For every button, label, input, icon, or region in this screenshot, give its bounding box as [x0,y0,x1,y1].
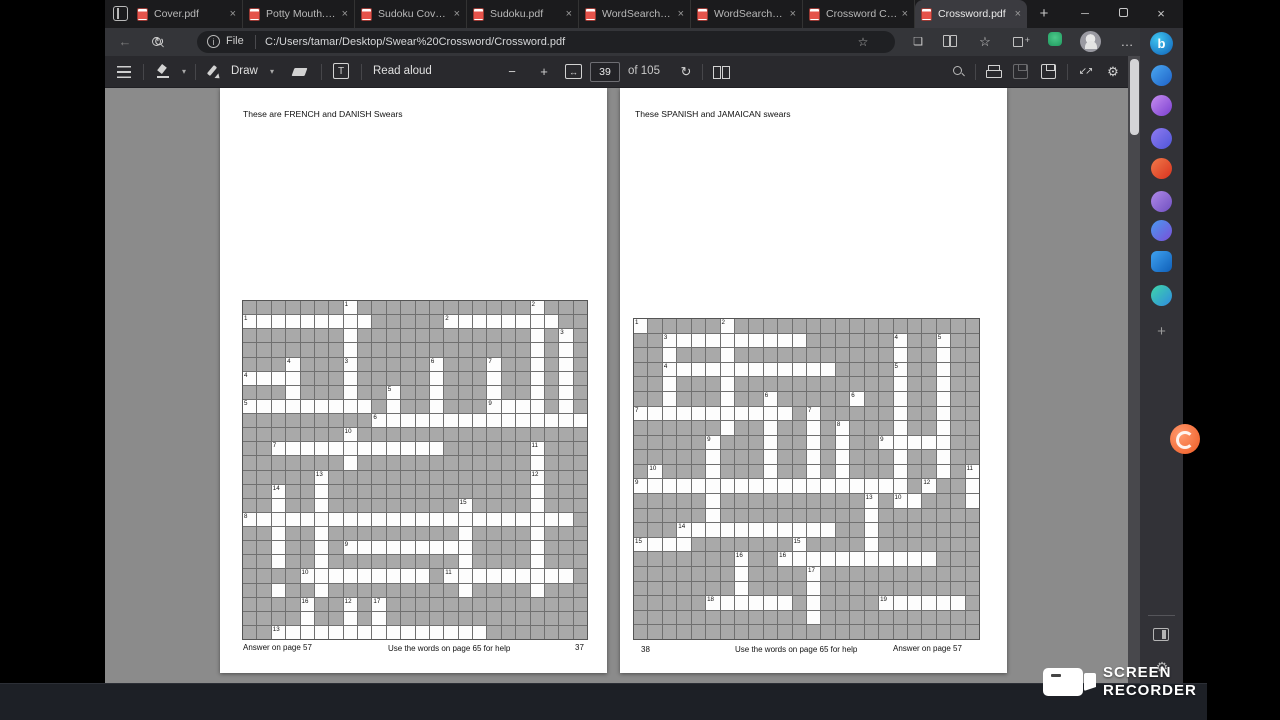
page-count-label: of 105 [628,65,660,77]
sidebar-panel-icon[interactable] [1153,628,1169,641]
bell-icon[interactable] [1151,65,1172,86]
tab-close-icon[interactable]: × [790,8,796,20]
chevron-down-icon[interactable]: ▾ [175,63,193,81]
tab-label: WordSearch Cover.pdf [602,8,674,20]
scrollbar[interactable] [1128,56,1140,683]
page-number: 38 [641,645,650,654]
fullscreen-icon[interactable]: ↙↗ [1076,63,1094,81]
watermark-line1: SCREEN [1103,664,1197,682]
page-title: These SPANISH and JAMAICAN swears [635,109,791,119]
browser-window: Cover.pdf × Potty Mouth.pdf × Sudoku Cov… [105,0,1183,683]
pdf-page-38: These SPANISH and JAMAICAN swears 123454… [620,88,1007,673]
divider [1148,615,1175,616]
tab[interactable]: Sudoku Cover.pdf × [355,0,467,28]
tab[interactable]: Crossword Cover.pdf × [803,0,915,28]
bing-copilot-icon[interactable]: b [1150,32,1171,53]
extensions-icon[interactable]: ❏ [908,32,928,52]
tab-label: WordSearch.pdf [714,8,786,20]
tab[interactable]: WordSearch.pdf × [691,0,803,28]
games-icon[interactable] [1151,191,1172,212]
scrollbar-thumb[interactable] [1130,59,1139,135]
settings-gear-icon[interactable]: ⚙ [1104,63,1122,81]
help-ref: Use the words on page 65 for help [388,644,510,653]
pdf-file-icon [809,8,820,21]
tab[interactable]: Crossword.pdf × [915,0,1027,28]
tab[interactable]: Potty Mouth.pdf × [243,0,355,28]
tab-close-icon[interactable]: × [902,8,908,20]
search-icon[interactable] [1151,95,1172,116]
pdf-file-icon [473,8,484,21]
microsoft-365-icon[interactable] [1151,220,1172,241]
info-icon[interactable]: i [207,35,220,48]
close-button[interactable]: × [1144,0,1178,28]
edge-sidebar: b + ⚙ [1140,28,1183,683]
floating-bubble[interactable] [1170,424,1200,454]
pdf-toolbar: ▾ Draw ▾ T Read aloud − + ↔ 39 of 105 ↻ … [105,56,1183,88]
read-aloud-button[interactable]: Read aloud [373,65,432,77]
sidebar-add-icon[interactable]: + [1151,321,1172,342]
tab-label: Sudoku.pdf [490,8,562,20]
fit-to-width-icon[interactable]: ↔ [565,64,582,79]
collections-icon[interactable] [1010,32,1030,52]
video-camera-icon [1043,668,1083,696]
minimize-button[interactable]: ─ [1068,0,1102,28]
save-icon [1013,64,1028,79]
favorite-star-icon[interactable]: ☆ [855,34,871,50]
watermark-line2: RECORDER [1103,682,1197,700]
tab-label: Crossword Cover.pdf [826,8,898,20]
crossword-grid: 1234545667789910119121310141515161617181… [633,318,980,640]
answer-ref: Answer on page 57 [893,644,962,653]
outlook-icon[interactable] [1151,251,1172,272]
tab-close-icon[interactable]: × [454,8,460,20]
maximize-button[interactable] [1106,0,1140,28]
chevron-down-icon[interactable]: ▾ [263,63,281,81]
tab-bar: Cover.pdf × Potty Mouth.pdf × Sudoku Cov… [105,0,1183,28]
tab-label: Potty Mouth.pdf [266,8,338,20]
tab-close-icon[interactable]: × [566,8,572,20]
profile-avatar[interactable] [1080,31,1101,52]
url-field[interactable]: i File C:/Users/tamar/Desktop/Swear%20Cr… [197,31,895,53]
tab[interactable]: Sudoku.pdf × [467,0,579,28]
pdf-content-area[interactable]: These are FRENCH and DANISH Swears 12123… [105,88,1140,683]
zoom-out-button[interactable]: − [503,63,521,81]
drop-icon[interactable] [1151,285,1172,306]
zoom-in-button[interactable]: + [535,63,553,81]
crossword-grid: 1212343674559610711131214158910111612171… [242,300,588,640]
url-text[interactable]: C:/Users/tamar/Desktop/Swear%20Crossword… [265,36,565,48]
toolbox-icon[interactable] [1151,158,1172,179]
text-box-icon[interactable]: T [333,63,349,79]
page-number: 37 [575,643,584,652]
screen: Cover.pdf × Potty Mouth.pdf × Sudoku Cov… [0,0,1280,720]
tab-strip: Cover.pdf × Potty Mouth.pdf × Sudoku Cov… [131,0,1027,28]
divider [255,35,256,49]
pdf-page-37: These are FRENCH and DANISH Swears 12123… [220,88,607,673]
eraser-icon[interactable] [291,63,309,81]
print-icon[interactable] [985,63,1003,81]
rotate-icon[interactable]: ↻ [677,63,695,81]
tab-close-icon[interactable]: × [678,8,684,20]
page-title: These are FRENCH and DANISH Swears [243,109,403,119]
save-as-icon[interactable] [1041,64,1056,79]
pdf-file-icon [921,8,932,21]
tab-close-icon[interactable]: × [342,8,348,20]
page-number-input[interactable]: 39 [590,62,620,82]
tab-label: Crossword.pdf [938,8,1011,20]
page-view-icon[interactable] [712,63,730,81]
pdf-file-icon [137,8,148,21]
file-badge: File [226,35,244,47]
back-icon[interactable]: ← [115,32,135,52]
pdf-file-icon [361,8,372,21]
toc-icon[interactable] [117,66,131,78]
help-ref: Use the words on page 65 for help [735,645,857,654]
answer-ref: Answer on page 57 [243,643,312,652]
search-document-icon[interactable] [950,63,968,81]
highlighter-icon[interactable] [155,63,173,81]
draw-label[interactable]: Draw [231,65,258,77]
tab-label: Sudoku Cover.pdf [378,8,450,20]
new-tab-button[interactable]: + [1035,5,1053,23]
address-bar: ← ↻ i File C:/Users/tamar/Desktop/Swear%… [105,28,1183,56]
pdf-file-icon [697,8,708,21]
pdf-file-icon [585,8,596,21]
tab[interactable]: Cover.pdf × [131,0,243,28]
tab-close-icon[interactable]: × [1015,8,1021,20]
shopping-tag-icon[interactable] [1151,128,1172,149]
browser-essentials-icon[interactable] [1045,32,1065,52]
tab-actions-icon[interactable] [113,6,128,21]
tab-label: Cover.pdf [154,8,226,20]
split-screen-icon[interactable] [941,32,961,52]
tab[interactable]: WordSearch Cover.pdf × [579,0,691,28]
pdf-file-icon [249,8,260,21]
favorites-icon[interactable]: ☆ [975,32,995,52]
tab-close-icon[interactable]: × [230,8,236,20]
draw-pen-icon[interactable] [207,63,225,81]
taskbar: Search b ^ 8/21/2023 [0,683,1207,720]
more-menu-icon[interactable]: … [1117,32,1137,52]
